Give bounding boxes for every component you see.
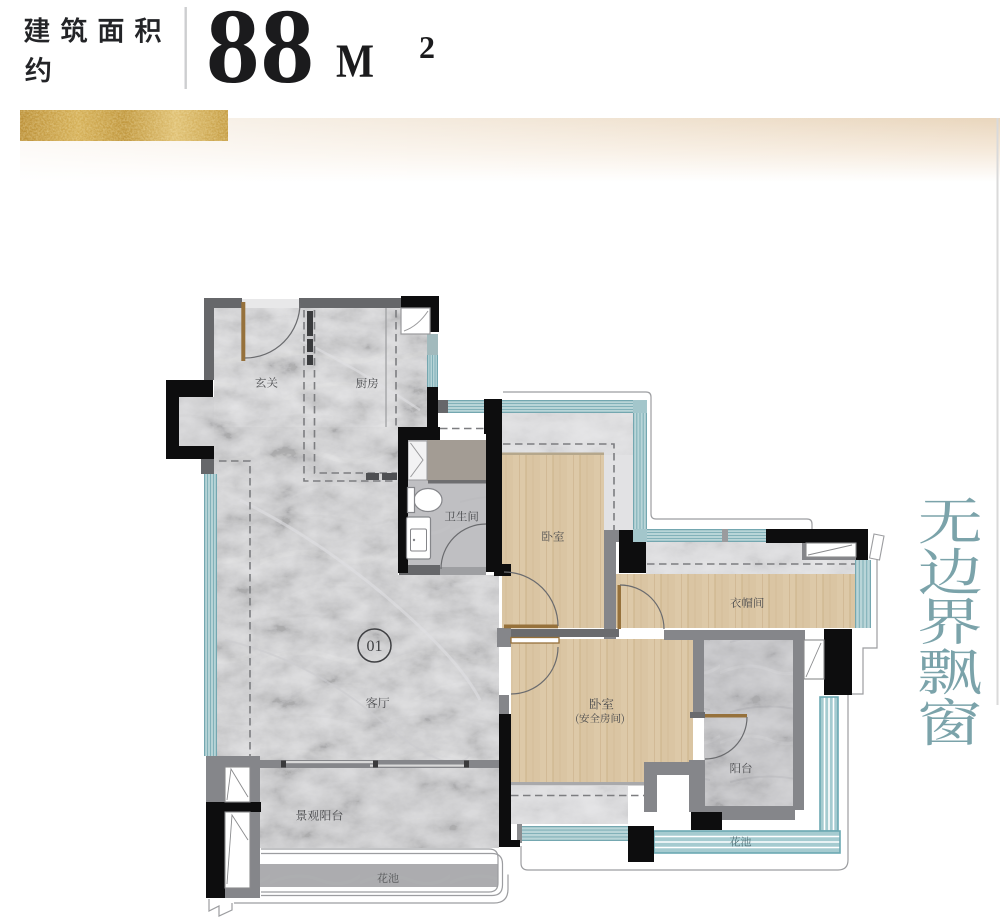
svg-text:M: M bbox=[336, 35, 374, 88]
svg-text:01: 01 bbox=[367, 638, 383, 655]
svg-text:88: 88 bbox=[206, 0, 315, 106]
svg-text:2: 2 bbox=[419, 29, 435, 65]
